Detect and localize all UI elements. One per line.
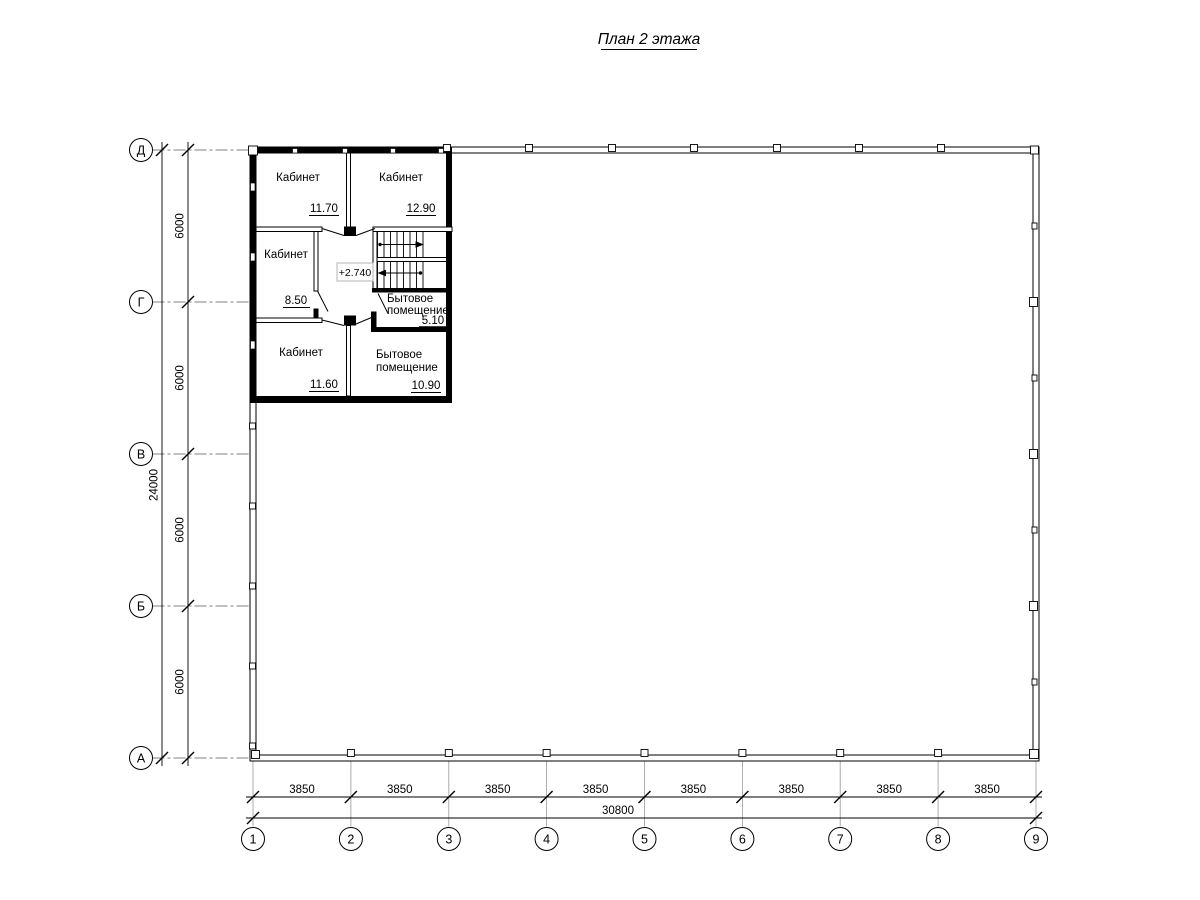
dim-label-3850-1: 3850 [289, 784, 315, 796]
grid-bubble-row-b-label: Б [137, 599, 145, 613]
block-bottom-wall [250, 396, 452, 403]
grid-bubble-col-7-label: 7 [837, 832, 844, 846]
room-labels: Кабинет 11.70 Кабинет 12.90 Кабинет 8.50… [264, 172, 449, 393]
room5-bottom-wall [371, 327, 446, 332]
corner-pilaster-bottom-left [252, 751, 260, 759]
elevation-mark-value: +2.740 [339, 267, 372, 279]
partition-hall-bottom-left [256, 318, 322, 323]
grid-bubble-col-9-label: 9 [1033, 832, 1040, 846]
grid-bubble-col-3-label: 3 [445, 832, 452, 846]
grid-bubble-col-5-label: 5 [641, 832, 648, 846]
dim-label-6000-1: 6000 [175, 213, 187, 239]
room-name-utility-1-line1: Бытовое [387, 293, 433, 305]
partition-top-rooms [347, 153, 351, 228]
dim-label-3850-4: 3850 [583, 784, 609, 796]
grid-bubble-row-d-label: Д [137, 143, 146, 157]
dim-label-3850-5: 3850 [681, 784, 707, 796]
stairwell-left-wall [373, 232, 377, 293]
dim-label-3850-7: 3850 [876, 784, 902, 796]
left-axes-dimensions: 6000 6000 6000 6000 24000 Д Г В Б А [130, 139, 251, 770]
room-area-utility-1: 5.10 [422, 315, 444, 327]
grid-bubble-col-2-label: 2 [347, 832, 354, 846]
block-top-wall [250, 147, 452, 153]
room-area-kabinet-2: 12.90 [407, 203, 436, 215]
building-outline [250, 147, 1039, 761]
room-name-kabinet-1: Кабинет [276, 172, 320, 184]
dim-label-24000: 24000 [149, 469, 161, 501]
stair-up-arrow [378, 241, 424, 248]
partition-lower-center [347, 326, 351, 397]
dim-label-6000-4: 6000 [175, 669, 187, 695]
grid-bubble-col-4-label: 4 [543, 832, 550, 846]
room-area-utility-2: 10.90 [412, 380, 441, 392]
grid-bubble-col-8-label: 8 [935, 832, 942, 846]
bottom-axes-dimensions: 3850 3850 3850 3850 3850 3850 3850 3850 … [242, 762, 1048, 851]
page-title: План 2 этажа [598, 31, 701, 48]
room-area-kabinet-3: 8.50 [285, 295, 307, 307]
stair-down-arrow [378, 270, 423, 277]
floor-plan-svg: План 2 этажа [0, 0, 1200, 900]
dim-label-3850-2: 3850 [387, 784, 413, 796]
door-leaf-kabinet3 [318, 291, 329, 312]
dim-label-6000-3: 6000 [175, 517, 187, 543]
pilaster-marks [249, 145, 1039, 759]
dim-label-6000-2: 6000 [175, 365, 187, 391]
stairwell-bottom-wall [372, 288, 452, 293]
room-name-utility-2-line2: помещение [376, 362, 438, 374]
room-name-utility-2-line1: Бытовое [376, 349, 422, 361]
door-leaf-top-right [356, 229, 375, 236]
dim-label-3850-8: 3850 [974, 784, 1000, 796]
floor-plan-page: План 2 этажа [0, 0, 1200, 900]
corner-pilaster-top-left [249, 146, 258, 155]
dim-label-30800: 30800 [602, 805, 634, 817]
stair-treads [378, 232, 424, 289]
door-leaf-bottom-left [322, 320, 344, 326]
grid-bubble-row-a-label: А [137, 751, 146, 765]
stairwell-top-wall [373, 227, 452, 232]
grid-bubble-col-1-label: 1 [250, 832, 257, 846]
corner-pilaster-bottom-right [1030, 750, 1039, 759]
column-grid-bubbles: 1 2 3 4 5 6 7 8 9 [242, 828, 1048, 851]
dim-label-3850-3: 3850 [485, 784, 511, 796]
dim-label-3850-6: 3850 [779, 784, 805, 796]
outer-wall-line [250, 147, 1039, 761]
grid-bubble-col-6-label: 6 [739, 832, 746, 846]
partition-hall-top-left [256, 227, 322, 232]
partition-kabinet3-right [314, 232, 318, 292]
room-area-kabinet-4: 11.60 [310, 379, 338, 391]
door-hinge-block-bottom [344, 316, 356, 326]
staircase [377, 232, 446, 289]
door-leaf-top-left [322, 229, 344, 236]
block-right-wall [446, 147, 452, 403]
room-name-kabinet-2: Кабинет [379, 172, 423, 184]
row-grid-bubbles: Д Г В Б А [130, 139, 153, 770]
room-area-kabinet-1: 11.70 [310, 203, 338, 215]
grid-bubble-row-v-label: В [137, 447, 145, 461]
drawing-title: План 2 этажа [598, 31, 701, 50]
column-extension-lines [253, 762, 1036, 827]
room-name-kabinet-3: Кабинет [264, 249, 308, 261]
grid-bubble-row-g-label: Г [138, 295, 145, 309]
room-name-kabinet-4: Кабинет [279, 347, 323, 359]
door-hinge-block-top [344, 227, 356, 237]
corner-pilaster-top-right [1031, 146, 1039, 154]
